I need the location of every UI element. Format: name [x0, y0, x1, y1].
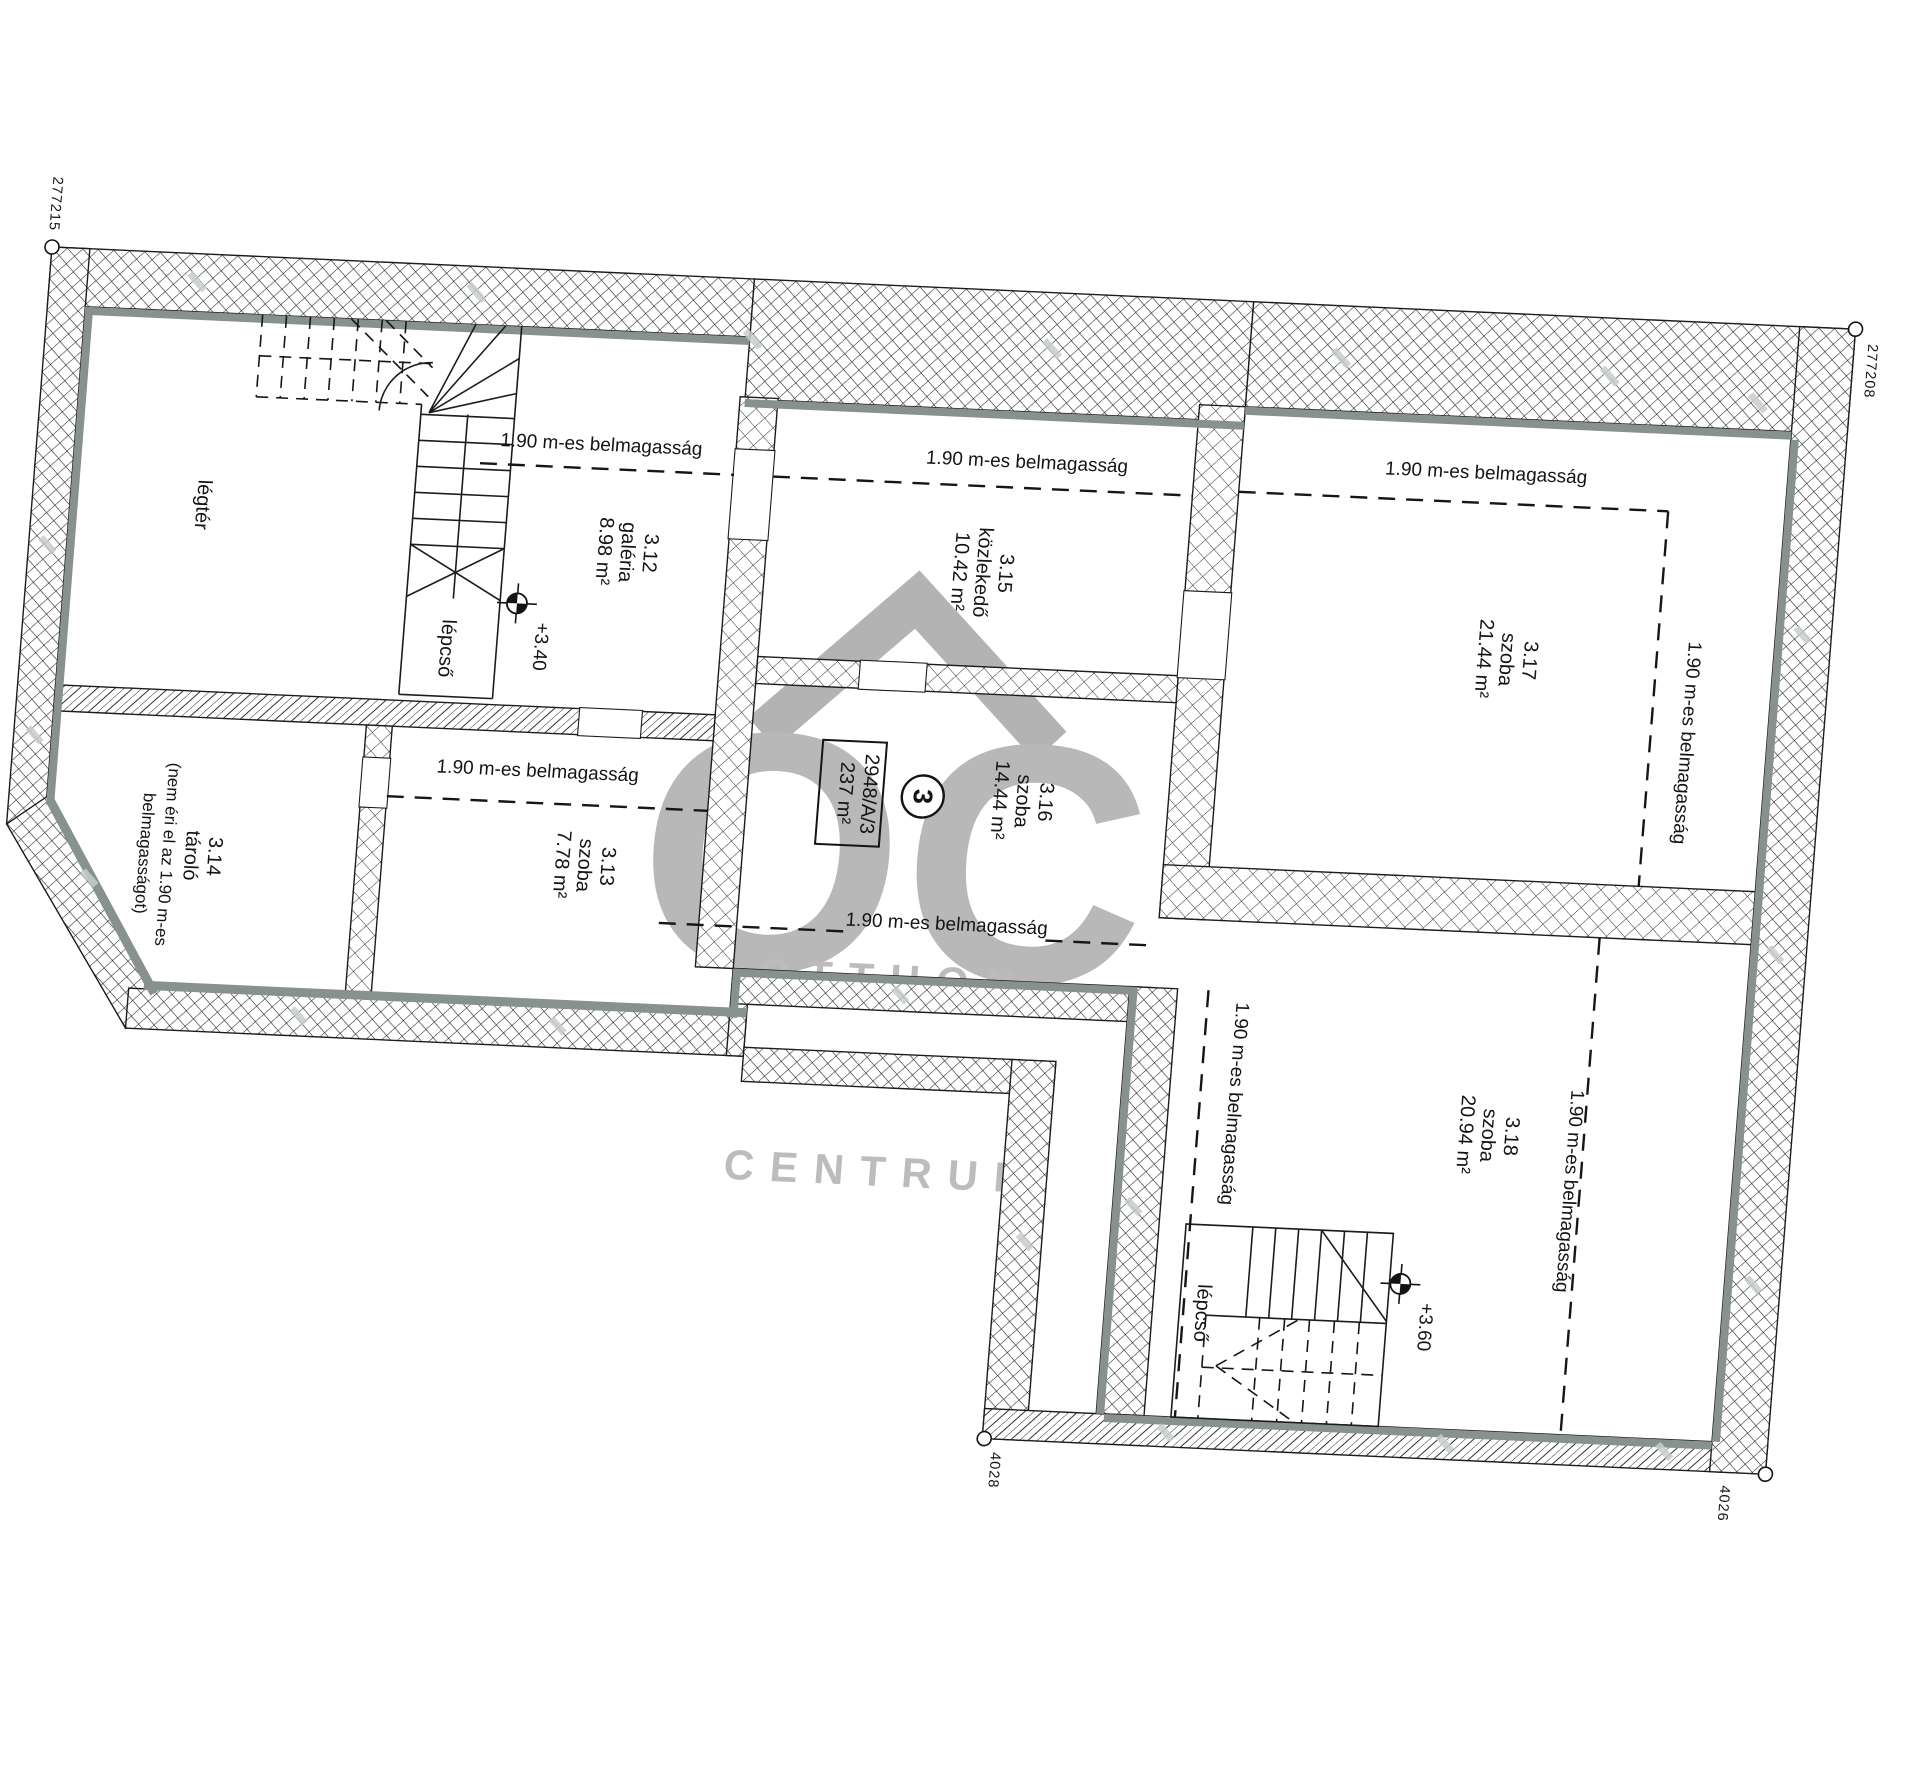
svg-text:szoba: szoba — [1493, 632, 1519, 687]
stairs-upper: lépcső — [233, 315, 521, 699]
height-line-317 — [1209, 492, 1668, 887]
svg-text:3.17: 3.17 — [1517, 641, 1542, 681]
svg-text:légtér: légtér — [190, 479, 216, 530]
door-gap-315-316 — [858, 660, 927, 692]
height-note-313: 1.90 m-es belmagasság — [436, 756, 640, 786]
height-note-318-right: 1.90 m-es belmagasság — [1551, 1089, 1588, 1293]
svg-text:szoba: szoba — [1009, 774, 1035, 829]
stairs-upper-label: lépcső — [433, 619, 459, 678]
svg-text:lépcső: lépcső — [433, 619, 459, 678]
corner-label-bottom-right: 4026 — [1714, 1485, 1733, 1522]
level-value-gallery: +3.40 — [528, 622, 553, 671]
svg-text:szoba: szoba — [1475, 1108, 1501, 1163]
room-label-3-17: 3.17 szoba 21.44 m² — [1470, 619, 1544, 701]
stairs-lower-label: lépcső — [1189, 1284, 1215, 1343]
corner-marker-top-left — [44, 240, 59, 255]
wall-lower-wing-left — [982, 1059, 1056, 1440]
svg-text:lépcső: lépcső — [1189, 1284, 1215, 1343]
room-label-3-14: 3.14 tároló (nem éri el az 1.90 m-es bel… — [128, 761, 232, 948]
svg-text:21.44 m²: 21.44 m² — [1470, 619, 1498, 699]
svg-text:3.18: 3.18 — [1499, 1116, 1524, 1156]
scanned-floor-plan-page: OC OTTHON CENTRUM — [0, 0, 1920, 1785]
level-value-lower: +3.60 — [1412, 1303, 1437, 1352]
wall-left — [7, 247, 90, 826]
svg-text:3.13: 3.13 — [595, 846, 620, 886]
height-note-317-top: 1.90 m-es belmagasság — [1384, 458, 1588, 488]
svg-text:(nem éri el az 1.90 m-es: (nem éri el az 1.90 m-es — [151, 762, 184, 946]
svg-text:7.78 m²: 7.78 m² — [548, 830, 575, 899]
svg-text:20.94 m²: 20.94 m² — [1451, 1094, 1479, 1174]
stairs-lower-dashed-treads — [1198, 1315, 1386, 1426]
corner-marker-bottom-right — [1758, 1467, 1773, 1482]
corner-marker-bottom-left — [977, 1431, 992, 1446]
unit-number: 3 — [907, 788, 938, 804]
svg-text:tároló: tároló — [178, 830, 204, 881]
wall-top-middle-segment — [745, 279, 1254, 422]
corner-label-top-left: 277215 — [45, 176, 65, 231]
floor-plan-drawing: OC OTTHON CENTRUM — [0, 0, 1920, 1785]
height-note-315: 1.90 m-es belmagasság — [925, 447, 1129, 477]
svg-text:3.15: 3.15 — [993, 553, 1018, 593]
door-gap-315-317 — [1177, 591, 1232, 680]
watermark-line2: CENTRUM — [722, 1141, 1046, 1203]
stairs-lower-solid-treads — [1206, 1225, 1393, 1323]
stairs-upper-solid-flight — [399, 322, 522, 698]
corner-marker-top-right — [1848, 322, 1863, 337]
room-label-3-15: 3.15 közlekedő 10.42 m² — [945, 526, 1020, 619]
svg-text:3.12: 3.12 — [637, 533, 662, 573]
svg-text:3.14: 3.14 — [202, 837, 227, 877]
level-marker-gallery: +3.40 — [492, 582, 556, 671]
room-label-3-18: 3.18 szoba 20.94 m² — [1451, 1094, 1525, 1176]
void-label: légtér — [190, 479, 216, 530]
svg-text:3.16: 3.16 — [1033, 782, 1058, 822]
room-label-3-12: 3.12 galéria 8.98 m² — [590, 517, 663, 588]
svg-text:8.98 m²: 8.98 m² — [590, 517, 617, 586]
svg-text:szoba: szoba — [571, 838, 597, 893]
door-gap-312-313 — [578, 708, 643, 739]
wall-317-318-divider — [1159, 865, 1755, 945]
stairs-lower: lépcső — [1171, 1224, 1393, 1426]
svg-text:belmagasságot): belmagasságot) — [131, 792, 159, 914]
door-gap-312-315 — [728, 449, 775, 541]
corner-label-top-right: 277208 — [1860, 344, 1880, 399]
height-note-gallery: 1.90 m-es belmagasság — [500, 430, 704, 460]
height-note-317-right: 1.90 m-es belmagasság — [1668, 641, 1705, 845]
corner-label-bottom-left: 4028 — [984, 1452, 1003, 1489]
wall-parapet-extension — [741, 1047, 1056, 1095]
door-gap-314-313 — [359, 757, 391, 808]
height-note-318-left: 1.90 m-es belmagasság — [1216, 1002, 1253, 1206]
height-line-318-left — [1175, 990, 1209, 1417]
room-label-3-13: 3.13 szoba 7.78 m² — [548, 830, 621, 901]
